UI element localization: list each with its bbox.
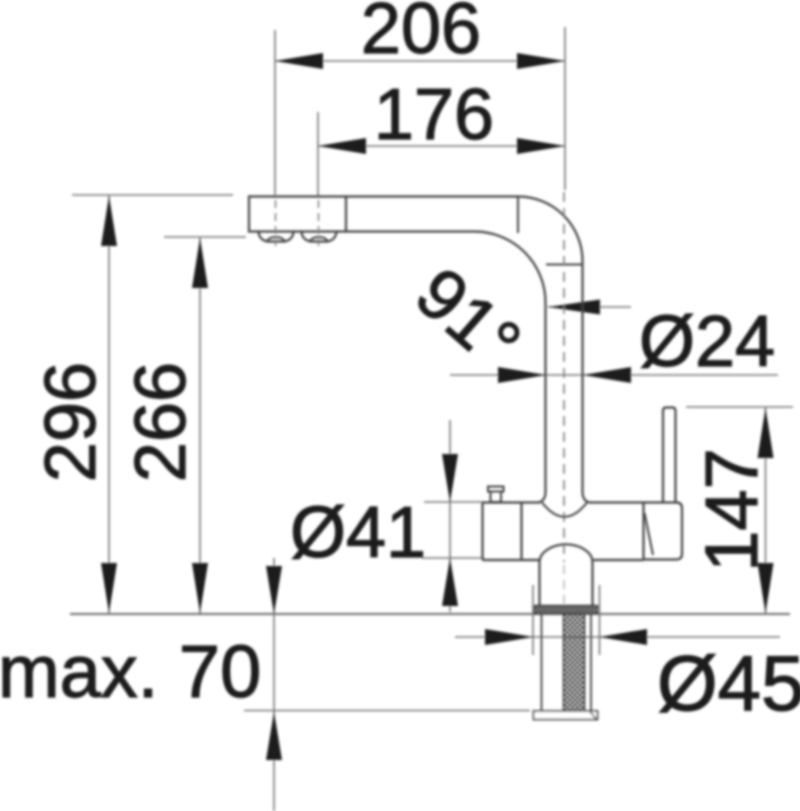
- svg-text:147: 147: [690, 448, 773, 571]
- svg-text:Ø41: Ø41: [290, 493, 426, 573]
- svg-text:296: 296: [31, 362, 111, 482]
- svg-text:266: 266: [121, 362, 201, 482]
- svg-text:176: 176: [374, 75, 494, 155]
- svg-text:max. 70: max. 70: [0, 630, 261, 713]
- svg-text:Ø45: Ø45: [657, 639, 800, 727]
- svg-text:206: 206: [361, 0, 481, 69]
- svg-text:Ø24: Ø24: [639, 302, 775, 382]
- svg-text:91°: 91°: [401, 253, 536, 385]
